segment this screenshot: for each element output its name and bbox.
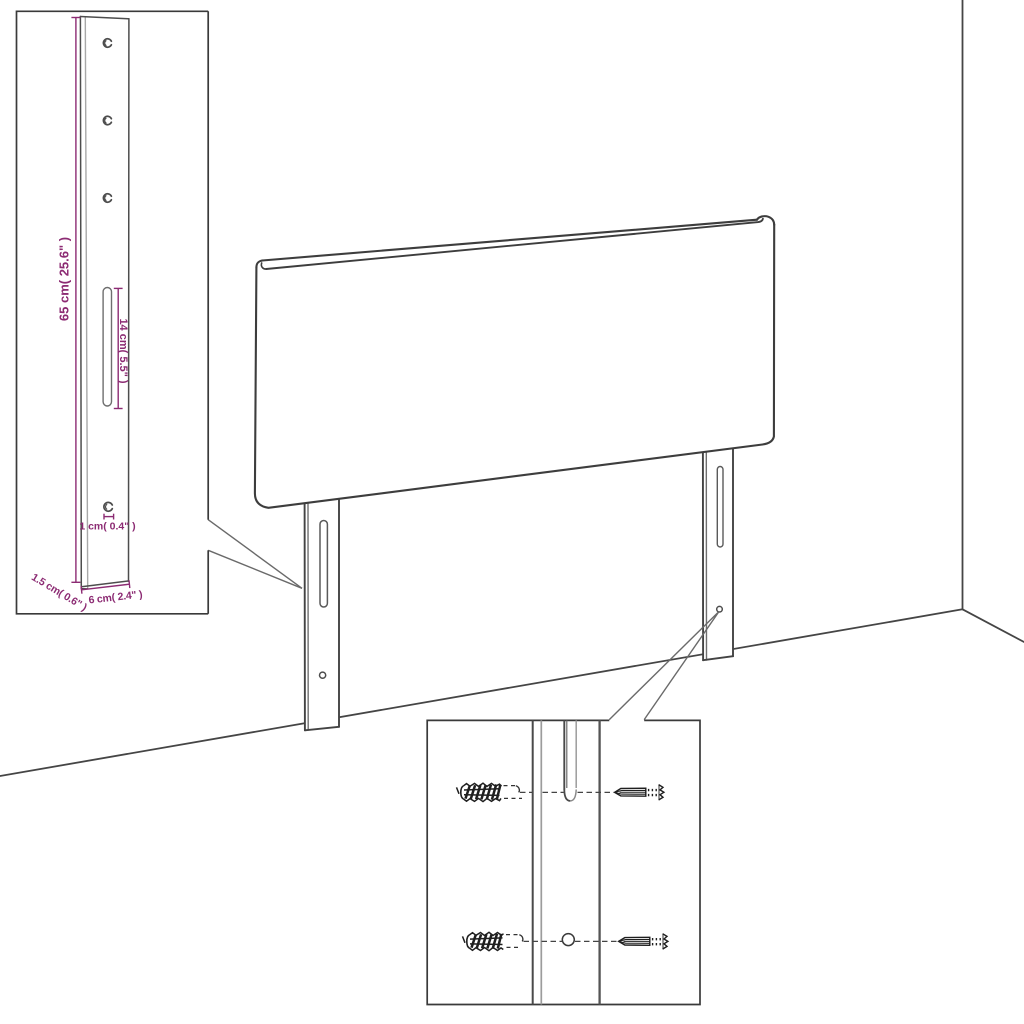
svg-text:1 cm( 0.4" ): 1 cm( 0.4" ) bbox=[79, 521, 135, 533]
svg-text:65 cm( 25.6" ): 65 cm( 25.6" ) bbox=[56, 237, 71, 321]
svg-text:14 cm( 5.5" ): 14 cm( 5.5" ) bbox=[117, 318, 129, 383]
